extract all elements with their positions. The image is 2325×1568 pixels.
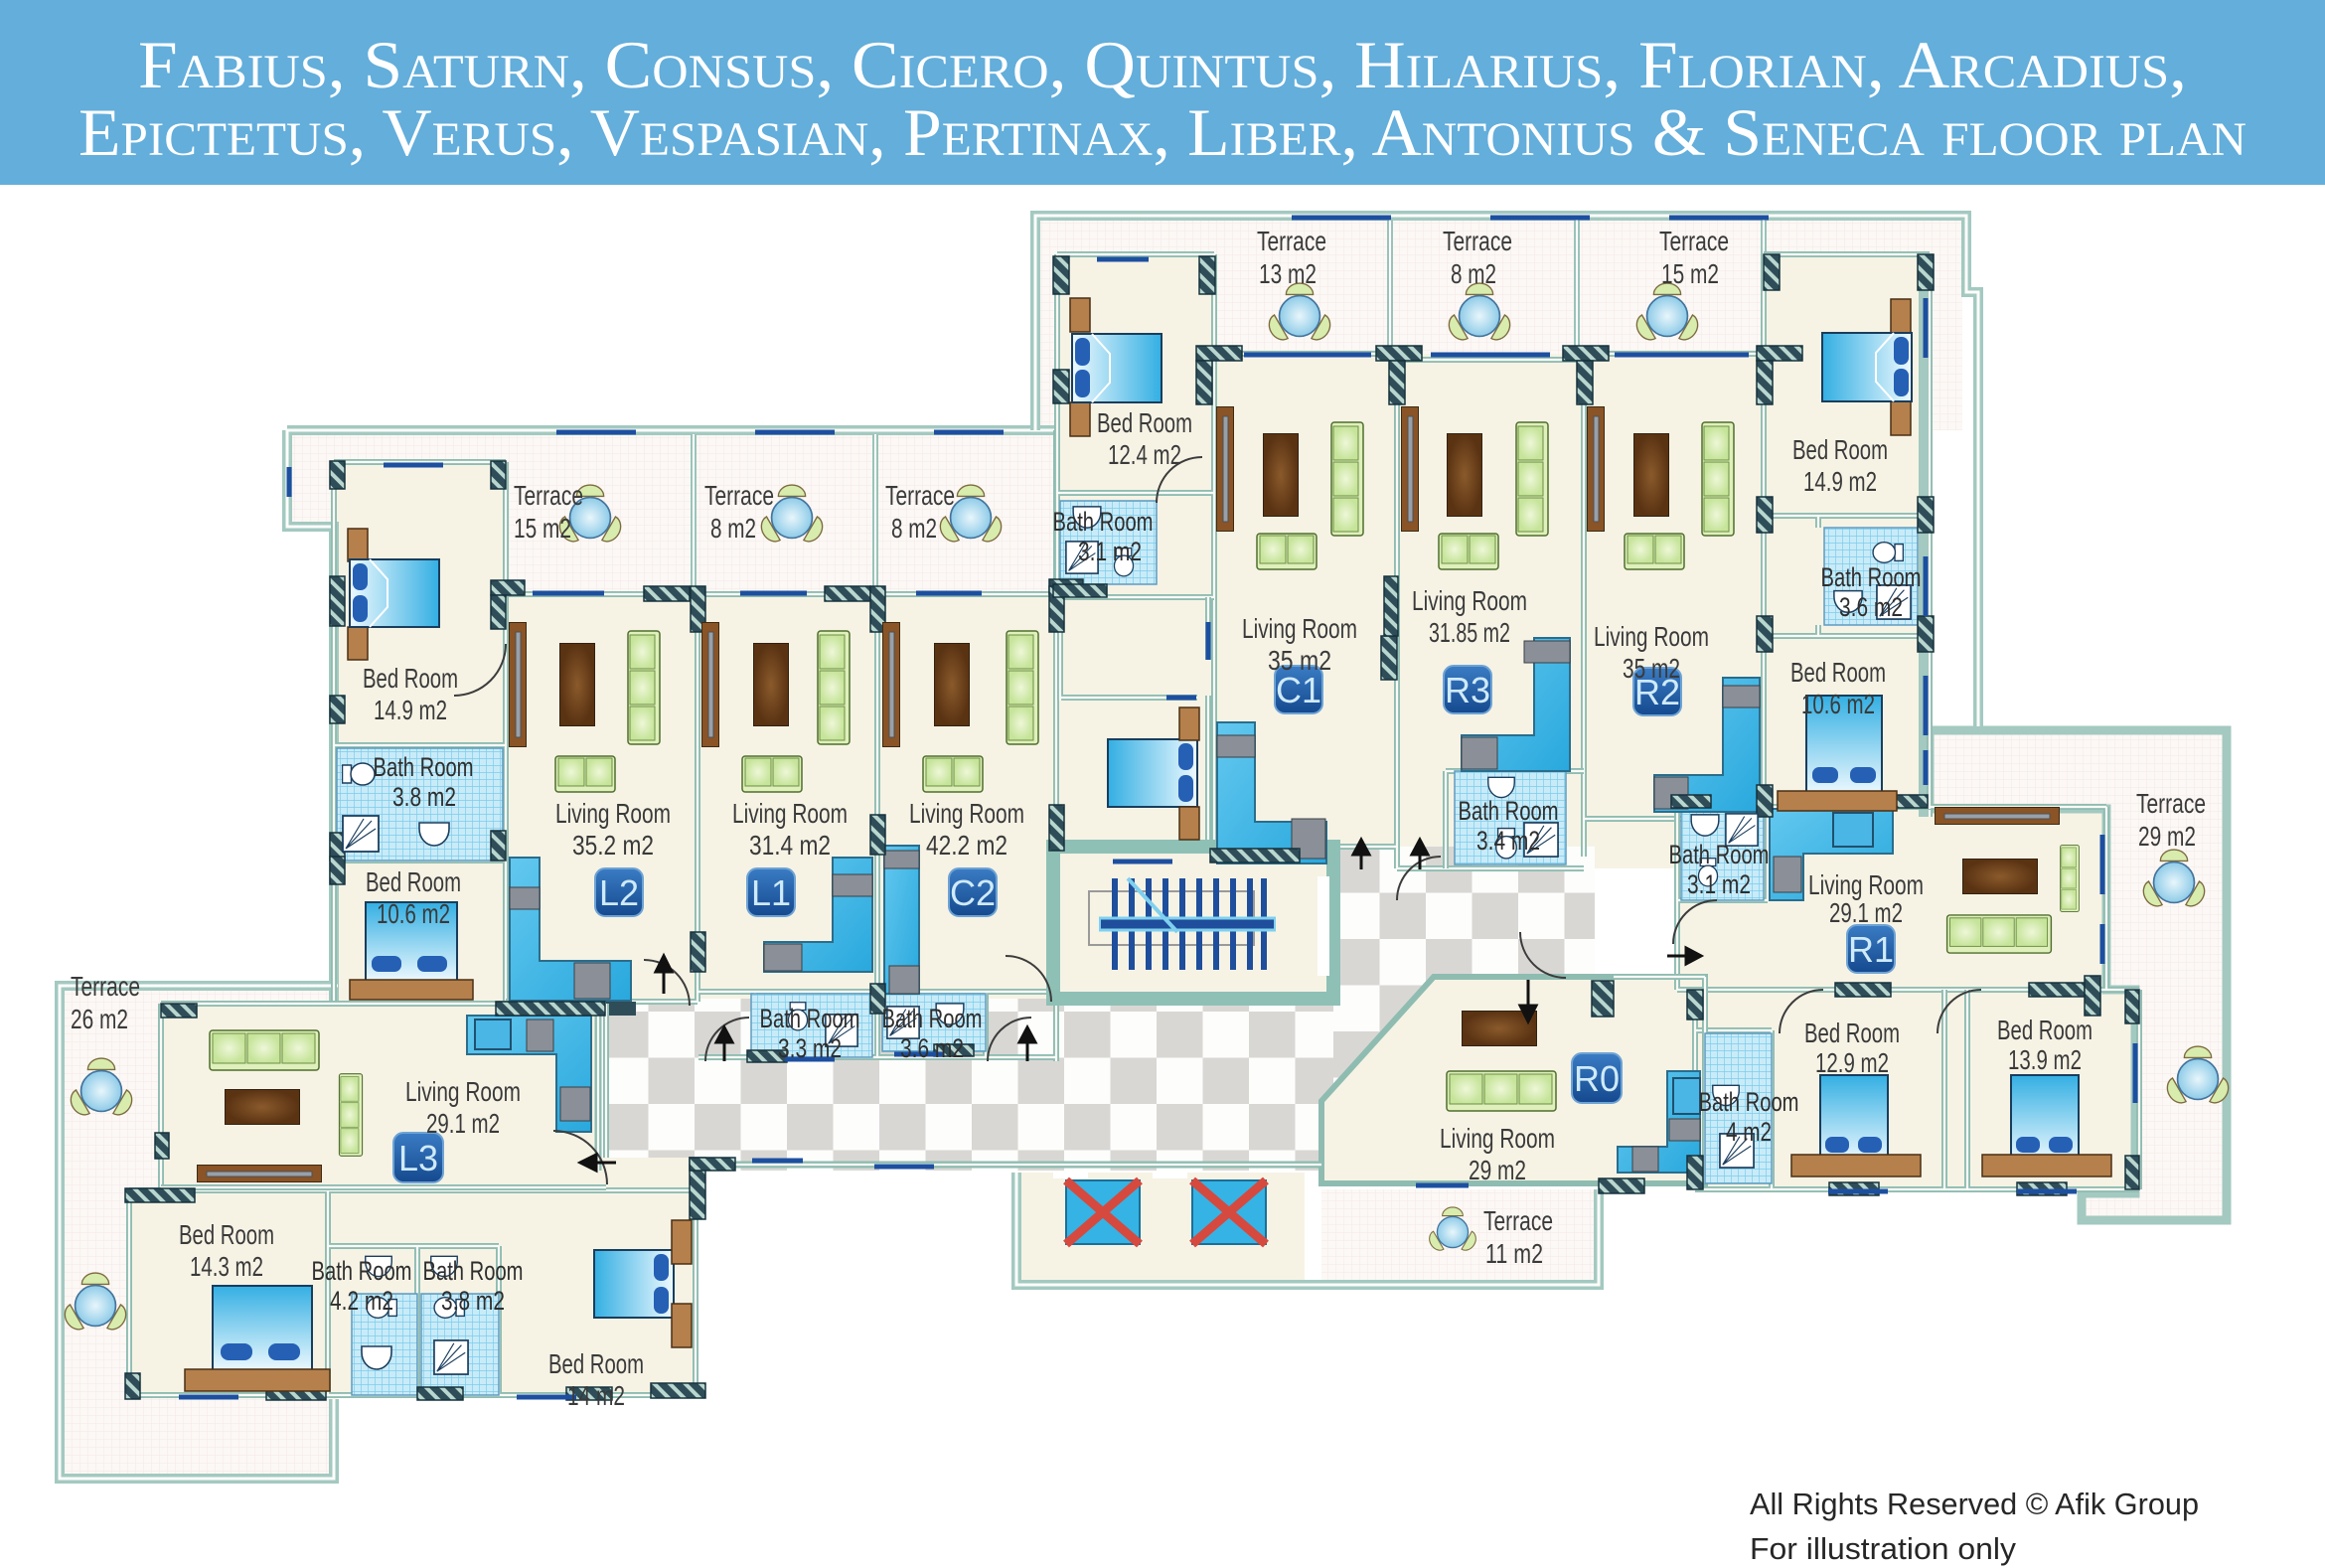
svg-text:Living Room: Living Room [1594,621,1709,652]
svg-text:3.4 m2: 3.4 m2 [1476,826,1540,856]
svg-text:3.8 m2: 3.8 m2 [441,1286,505,1316]
svg-text:Bed Room: Bed Room [548,1348,644,1379]
svg-text:Bath Room: Bath Room [760,1004,860,1033]
svg-text:Bed Room: Bed Room [1792,434,1888,465]
svg-text:L2: L2 [599,872,639,913]
svg-text:Terrace: Terrace [885,480,955,511]
svg-text:C1: C1 [1276,670,1321,710]
svg-text:Terrace: Terrace [514,480,583,511]
svg-text:Bath Room: Bath Room [1459,796,1559,826]
svg-text:Bath Room: Bath Room [1699,1087,1799,1117]
svg-text:15 m2: 15 m2 [514,513,571,544]
svg-text:8 m2: 8 m2 [710,513,756,544]
svg-text:For illustration only: For illustration only [1750,1531,2017,1566]
svg-text:Terrace: Terrace [71,971,140,1002]
svg-text:3.1 m2: 3.1 m2 [1687,869,1751,899]
svg-text:31.4 m2: 31.4 m2 [749,830,831,861]
svg-text:Living Room: Living Room [1808,869,1924,900]
svg-text:13 m2: 13 m2 [1259,258,1317,289]
svg-text:Bath Room: Bath Room [882,1004,983,1033]
svg-text:L1: L1 [751,872,791,913]
svg-text:Bath Room: Bath Room [1053,507,1154,537]
svg-text:31.85 m2: 31.85 m2 [1429,617,1510,648]
svg-text:Living Room: Living Room [1412,585,1527,616]
svg-text:26 m2: 26 m2 [71,1004,128,1034]
svg-text:R1: R1 [1848,929,1894,970]
svg-text:Epictetus, Verus, Vespasian, P: Epictetus, Verus, Vespasian, Pertinax, L… [78,94,2247,170]
svg-text:35 m2: 35 m2 [1623,653,1680,684]
svg-text:Living Room: Living Room [1440,1123,1555,1154]
svg-text:Terrace: Terrace [2136,788,2206,819]
svg-text:Terrace: Terrace [1659,226,1729,256]
svg-text:All Rights Reserved © Afik Gro: All Rights Reserved © Afik Group [1750,1487,2199,1521]
svg-text:Terrace: Terrace [1483,1205,1553,1236]
svg-text:3.8 m2: 3.8 m2 [392,782,456,812]
svg-text:Living Room: Living Room [555,798,671,829]
svg-text:13.9 m2: 13.9 m2 [2008,1044,2082,1075]
svg-text:4.2 m2: 4.2 m2 [330,1286,393,1316]
svg-text:Terrace: Terrace [704,480,774,511]
svg-text:10.6 m2: 10.6 m2 [377,898,450,929]
svg-text:12.9 m2: 12.9 m2 [1815,1047,1889,1078]
svg-text:Living Room: Living Room [1242,613,1357,644]
svg-text:Bed Room: Bed Room [366,866,461,897]
svg-text:R0: R0 [1574,1058,1620,1099]
svg-text:29 m2: 29 m2 [2138,821,2196,852]
svg-text:Terrace: Terrace [1443,226,1512,256]
svg-text:12.4 m2: 12.4 m2 [1108,439,1181,470]
svg-text:35 m2: 35 m2 [1268,645,1331,676]
svg-text:14.9 m2: 14.9 m2 [1803,466,1877,497]
svg-text:L3: L3 [398,1138,438,1178]
svg-text:Bed Room: Bed Room [1997,1015,2092,1045]
svg-text:10.6 m2: 10.6 m2 [1801,689,1875,719]
svg-text:15 m2: 15 m2 [1661,258,1719,289]
svg-text:C2: C2 [950,872,996,913]
svg-text:29.1 m2: 29.1 m2 [1829,897,1903,928]
svg-text:35.2 m2: 35.2 m2 [572,830,654,861]
svg-text:3.1 m2: 3.1 m2 [1078,537,1142,566]
svg-text:8 m2: 8 m2 [1451,258,1496,289]
svg-text:11 m2: 11 m2 [1485,1238,1543,1269]
svg-text:14.3 m2: 14.3 m2 [190,1251,263,1282]
svg-text:R3: R3 [1445,670,1490,710]
svg-text:4 m2: 4 m2 [1726,1117,1772,1147]
svg-text:Living Room: Living Room [909,798,1024,829]
svg-text:Bed Room: Bed Room [1097,407,1192,438]
svg-text:3.3 m2: 3.3 m2 [778,1033,842,1063]
svg-text:42.2 m2: 42.2 m2 [926,830,1007,861]
svg-text:14.9 m2: 14.9 m2 [374,695,447,725]
svg-text:3.6 m2: 3.6 m2 [1839,592,1903,622]
svg-text:Bed Room: Bed Room [179,1219,274,1250]
svg-text:Bath Room: Bath Room [423,1256,524,1286]
svg-text:Bed Room: Bed Room [1790,657,1886,688]
svg-text:Living Room: Living Room [405,1076,521,1107]
svg-text:Bath Room: Bath Room [1669,840,1770,869]
svg-text:14 m2: 14 m2 [567,1380,625,1411]
svg-text:Bath Room: Bath Room [1821,562,1922,592]
svg-text:Fabius, Saturn, Consus, Cicero: Fabius, Saturn, Consus, Cicero, Quintus,… [138,27,2187,102]
svg-text:29.1 m2: 29.1 m2 [426,1108,500,1139]
svg-text:Terrace: Terrace [1257,226,1326,256]
svg-text:8 m2: 8 m2 [891,513,937,544]
svg-text:Bed Room: Bed Room [363,663,458,694]
svg-text:Bed Room: Bed Room [1804,1018,1900,1048]
svg-text:29 m2: 29 m2 [1469,1155,1526,1185]
svg-text:3.6 m2: 3.6 m2 [900,1033,964,1063]
svg-text:Bath Room: Bath Room [312,1256,412,1286]
svg-text:Bath Room: Bath Room [374,752,474,782]
svg-text:Living Room: Living Room [732,798,848,829]
